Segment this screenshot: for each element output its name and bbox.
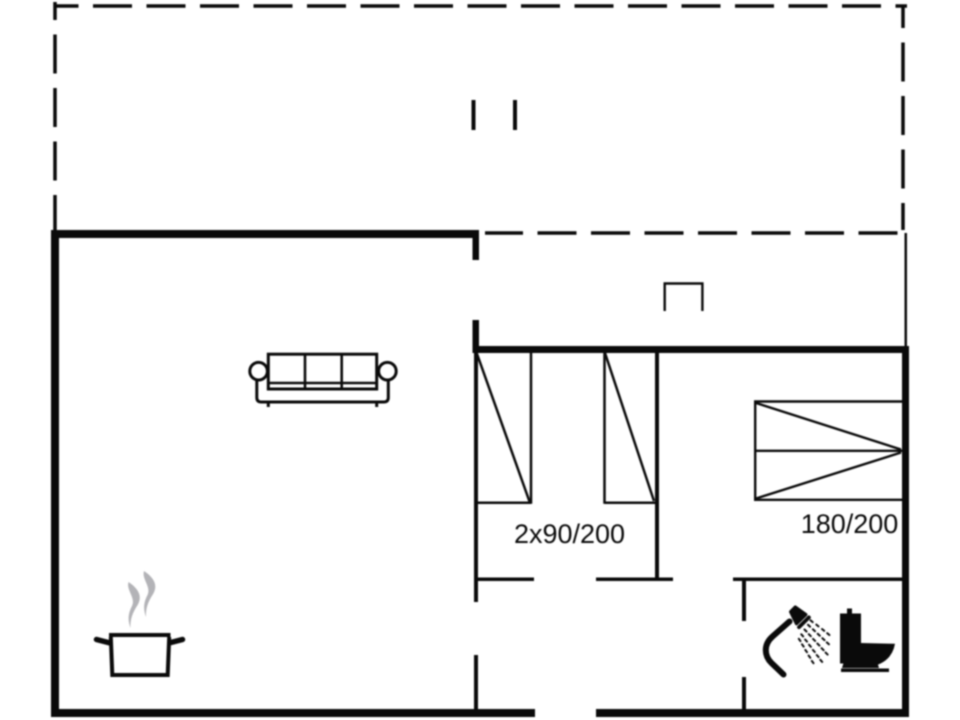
svg-text:2x90/200: 2x90/200 xyxy=(514,519,625,549)
svg-text:180/200: 180/200 xyxy=(801,509,899,539)
